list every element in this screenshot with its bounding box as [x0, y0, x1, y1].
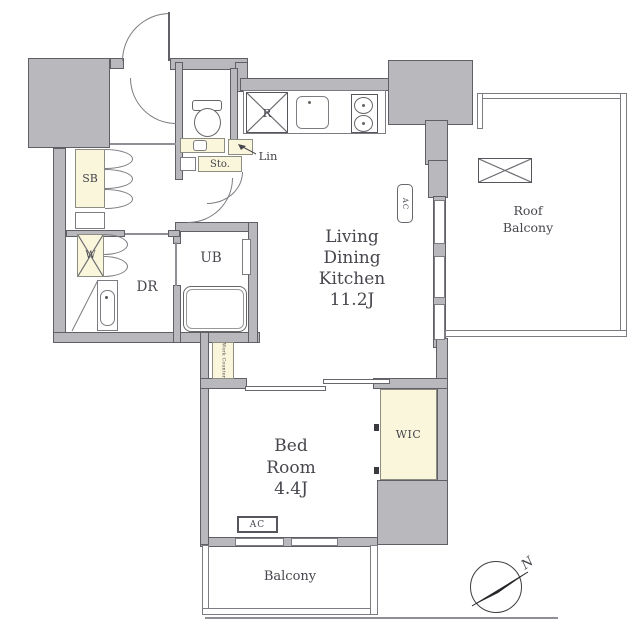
sink-faucet-dot	[308, 101, 311, 104]
entrance-door-leaf	[168, 12, 170, 61]
bathtub	[183, 286, 247, 332]
storage-box: Sto.	[198, 156, 242, 172]
ldk-window-3	[434, 304, 445, 340]
toilet-bowl	[194, 108, 221, 137]
wall-wic-right	[437, 385, 448, 485]
roof-balcony-border-left	[477, 93, 483, 129]
roof-balcony-border-top	[477, 93, 627, 99]
shoe-box-door-3	[105, 189, 133, 209]
dr-diagonal-line	[70, 278, 100, 333]
ldk-ac-unit: AC	[397, 184, 413, 223]
ldk-size: 11.2J	[296, 290, 408, 311]
kitchen-sink	[296, 96, 329, 129]
work-counter-label: Work Counter	[221, 343, 226, 379]
washer-door-1	[104, 234, 128, 255]
shoe-box-door-2	[105, 169, 133, 189]
entry-inner-door-arc	[130, 78, 176, 124]
dr-title: DR	[131, 279, 163, 296]
wic-door-jamb-bottom	[374, 467, 379, 474]
roof-balcony-border-right	[620, 93, 627, 337]
shoe-box-label: SB	[82, 172, 98, 185]
bedroom-line2: Room	[241, 458, 341, 480]
ub-counter	[242, 239, 251, 275]
toilet-door-arc	[207, 172, 243, 204]
wic-door-jamb-top	[374, 424, 379, 431]
refrigerator-label: R	[263, 106, 272, 120]
balcony-wall-left	[202, 545, 209, 615]
wall-right-upper-a	[425, 120, 448, 165]
entry-step-line	[110, 143, 176, 145]
work-counter: Work Counter	[212, 342, 234, 379]
roof-balcony-line1: Roof	[489, 202, 567, 219]
sliding-door-panel-2	[323, 379, 390, 384]
roof-balcony-line2: Balcony	[489, 219, 567, 236]
shoe-box-door-1	[105, 149, 133, 169]
linen-title: Lin	[253, 149, 283, 163]
balcony-wall-right	[370, 545, 378, 615]
washer-door-2	[104, 256, 128, 277]
ldk-window-2	[434, 256, 445, 298]
bedroom-size: 4.4J	[241, 479, 341, 501]
ground-line	[205, 617, 558, 619]
stove-burner-2-dot	[362, 122, 365, 125]
wall-right-upper-b	[428, 160, 448, 198]
storage-label: Sto.	[210, 159, 230, 170]
ub-door-line	[175, 242, 177, 286]
wall-left	[53, 148, 66, 343]
bedroom-ac-label: AC	[250, 520, 265, 530]
wall-below-wic-block	[377, 480, 448, 545]
ldk-line3: Kitchen	[296, 269, 408, 290]
balcony-title: Balcony	[252, 569, 328, 585]
mini-basin	[193, 140, 207, 151]
ldk-ac-label: AC	[401, 197, 409, 209]
refrigerator-space: R	[246, 92, 288, 133]
wall-top-right-block	[388, 60, 473, 125]
wall-bedroom-left	[200, 332, 209, 545]
bedroom-window-2	[291, 538, 338, 546]
bathtub-inner	[186, 289, 244, 329]
wall-dr-top-right	[168, 230, 180, 237]
dr-sliding-door-line	[125, 233, 168, 235]
roof-balcony-border-bottom	[445, 330, 627, 337]
bedroom-ac-unit: AC	[237, 516, 278, 533]
wall-toilet-right	[230, 68, 238, 140]
storage-side-box	[180, 157, 196, 171]
wall-ub-left-b	[173, 285, 181, 343]
ldk-title: Living Dining Kitchen 11.2J	[296, 227, 408, 311]
washer-space: W	[77, 234, 104, 277]
floor-plan: R Sto. SB W Work Counter	[0, 0, 640, 634]
vanity-faucet-dot	[105, 296, 108, 299]
entrance-door-arc	[122, 13, 170, 61]
balcony-wall-bottom	[202, 608, 378, 615]
roof-hatch-icon	[478, 158, 532, 183]
bedroom-window-1	[235, 538, 284, 546]
roof-balcony-title: Roof Balcony	[489, 202, 567, 236]
wic-room: WIC	[380, 389, 437, 480]
sliding-door-panel-1	[245, 386, 326, 391]
ldk-line1: Living	[296, 227, 408, 248]
bedroom-line1: Bed	[241, 436, 341, 458]
stove-burner-1-dot	[362, 104, 365, 107]
wall-bedroom-bottom	[200, 537, 378, 547]
shoe-box-lower	[75, 212, 105, 229]
wall-partition-left	[200, 378, 247, 389]
washer-label: W	[85, 250, 95, 261]
ub-title: UB	[195, 250, 227, 267]
ldk-window-1	[434, 200, 445, 244]
shoe-box: SB	[75, 149, 105, 208]
wall-top-left-block	[28, 58, 110, 148]
wic-label: WIC	[396, 428, 422, 441]
wall-ub-top	[175, 222, 258, 232]
ldk-line2: Dining	[296, 248, 408, 269]
bedroom-title: Bed Room 4.4J	[241, 436, 341, 501]
